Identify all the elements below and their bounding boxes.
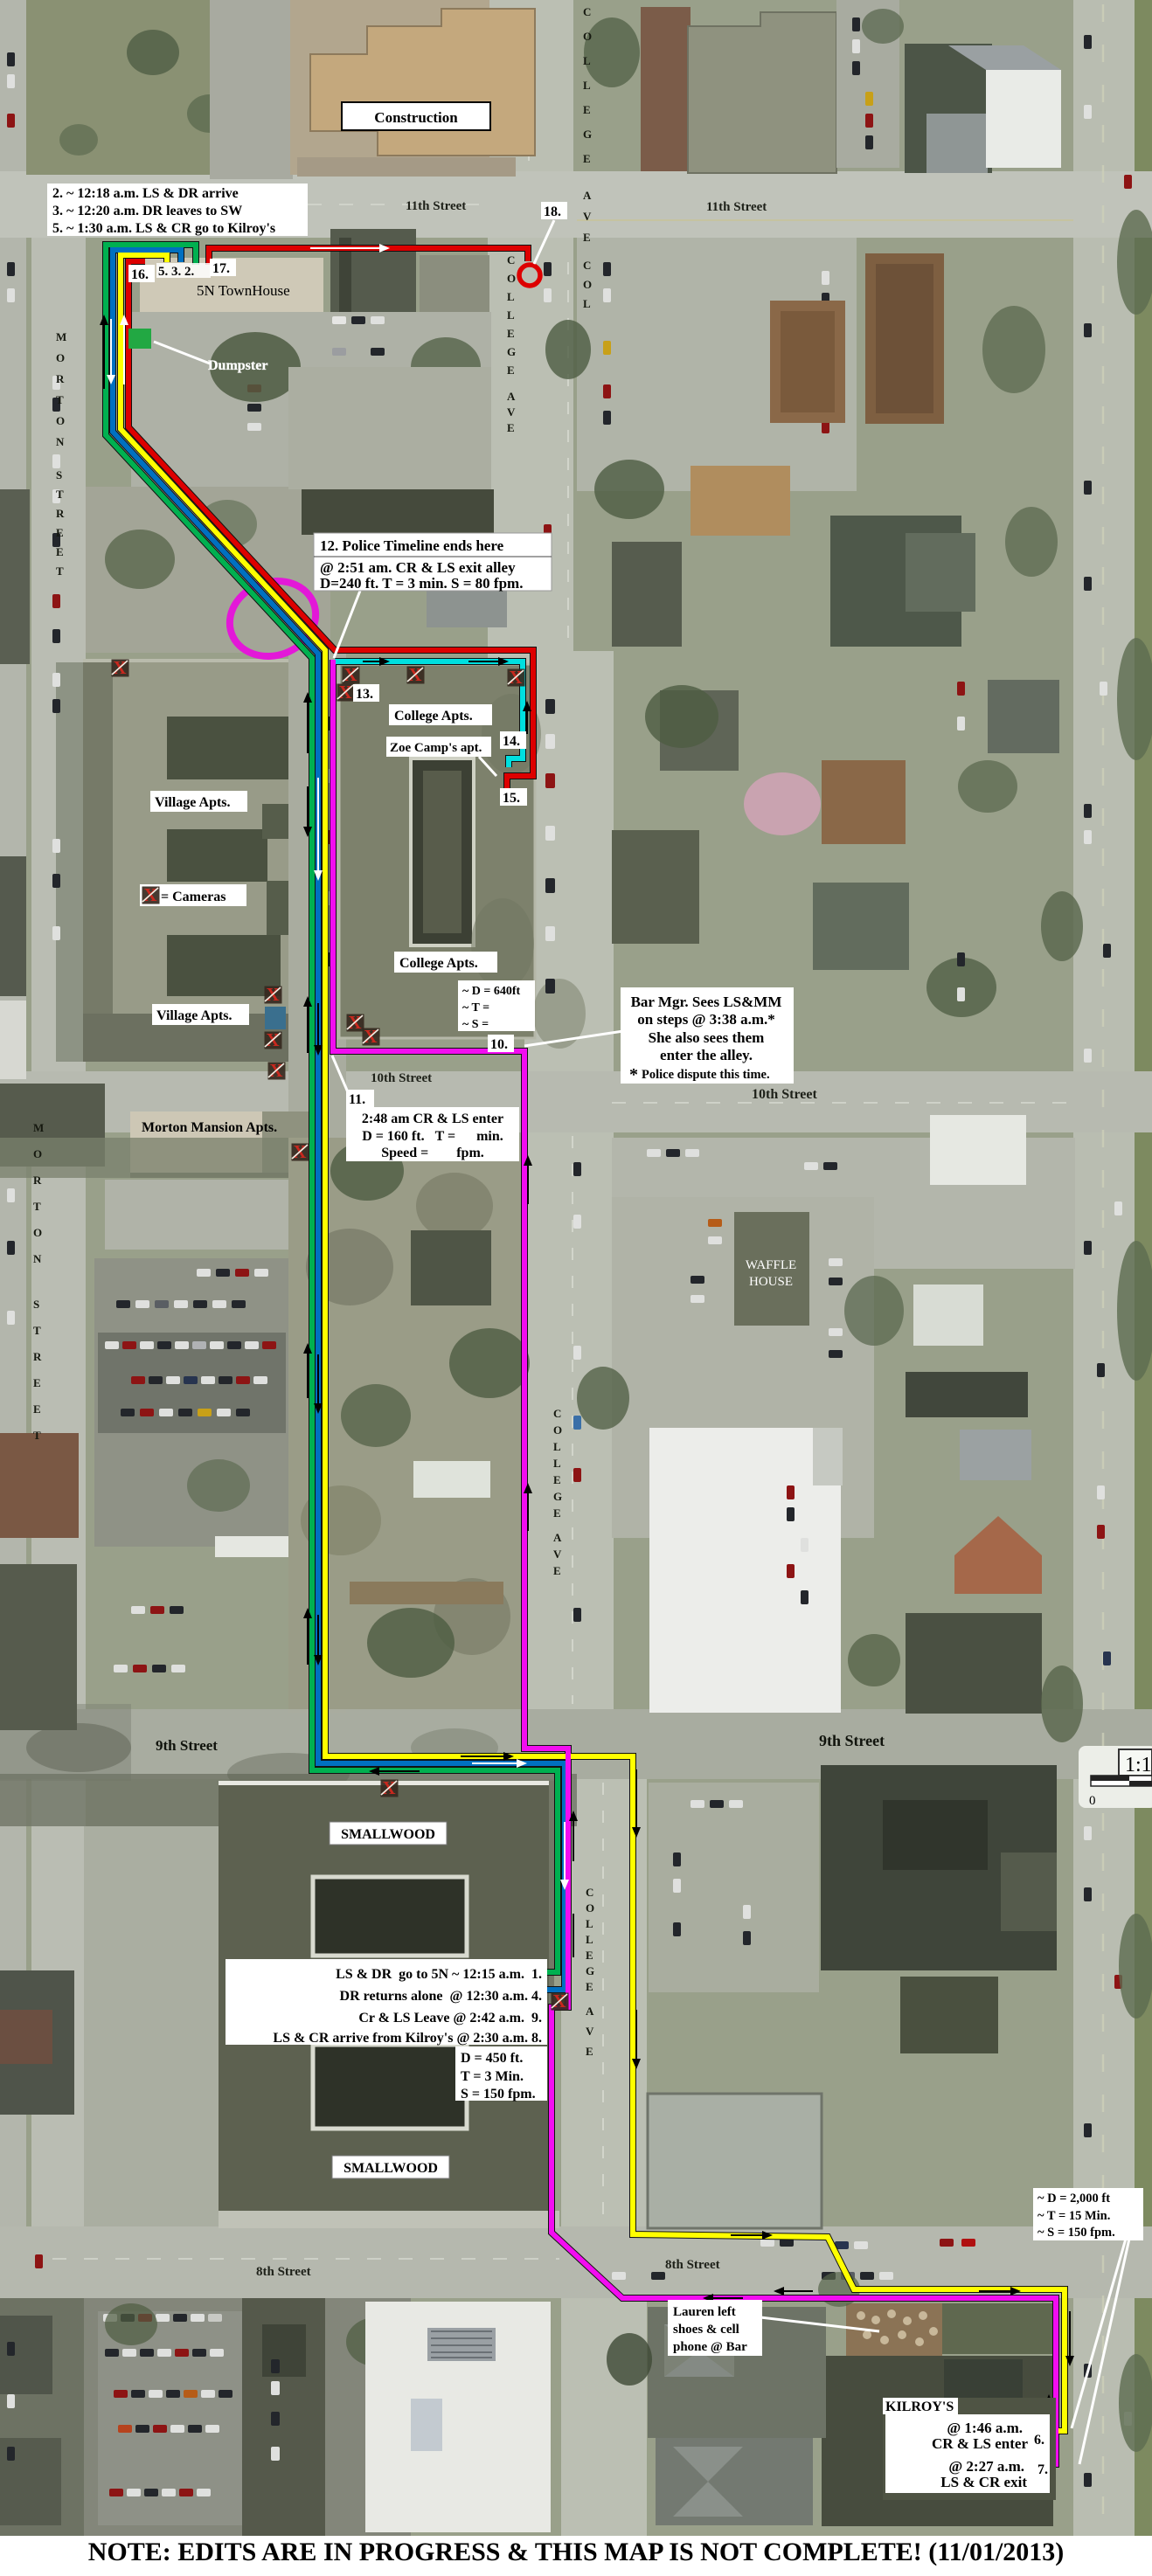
svg-text:17.: 17.	[212, 261, 230, 276]
svg-text:~ S = 150 fpm.: ~ S = 150 fpm.	[1037, 2226, 1115, 2240]
svg-text:Lauren left: Lauren left	[673, 2305, 736, 2319]
svg-text:3. ~ 12:20 a.m. DR leaves to S: 3. ~ 12:20 a.m. DR leaves to SW	[52, 204, 242, 218]
svg-text:LS & CR arrive from Kilroy's @: LS & CR arrive from Kilroy's @ 2:30 a.m.…	[273, 2031, 542, 2046]
svg-text:*: *	[629, 1065, 638, 1084]
svg-text:5N TownHouse: 5N TownHouse	[197, 282, 290, 299]
svg-text:11.: 11.	[349, 1092, 365, 1107]
svg-text:Morton Mansion Apts.: Morton Mansion Apts.	[142, 1120, 277, 1135]
svg-text:KILROY'S: KILROY'S	[885, 2399, 954, 2414]
svg-text:9th Street: 9th Street	[156, 1737, 218, 1754]
svg-text:~ T =: ~ T =	[462, 1001, 489, 1014]
svg-text:= Cameras: = Cameras	[161, 890, 226, 904]
svg-text:Dumpster: Dumpster	[208, 358, 267, 373]
svg-text:5. ~ 1:30 a.m. LS & CR go to K: 5. ~ 1:30 a.m. LS & CR go to Kilroy's	[52, 221, 275, 236]
svg-text:10th Street: 10th Street	[752, 1087, 817, 1102]
svg-text:Police dispute this time.: Police dispute this time.	[642, 1068, 770, 1082]
svg-text:S = 150 fpm.: S = 150 fpm.	[461, 2087, 536, 2102]
svg-text:WAFFLE: WAFFLE	[746, 1258, 796, 1272]
svg-text:Zoe Camp's apt.: Zoe Camp's apt.	[390, 741, 482, 755]
svg-text:@ 2:27 a.m.: @ 2:27 a.m.	[948, 2458, 1024, 2475]
svg-text:15.: 15.	[503, 791, 520, 806]
svg-text:CR & LS enter: CR & LS enter	[932, 2435, 1028, 2452]
svg-text:College Apts.: College Apts.	[399, 956, 478, 971]
svg-text:T = 3 Min.: T = 3 Min.	[461, 2069, 524, 2084]
svg-text:Village Apts.: Village Apts.	[156, 1008, 232, 1023]
svg-text:2. ~ 12:18 a.m. LS & DR arrive: 2. ~ 12:18 a.m. LS & DR arrive	[52, 186, 239, 201]
svg-text:11th Street: 11th Street	[406, 199, 466, 213]
svg-text:10.: 10.	[490, 1037, 508, 1052]
svg-text:LS & DR go to 5N ~ 12:15 a.m.: LS & DR go to 5N ~ 12:15 a.m. 1.	[336, 1967, 542, 1982]
svg-text:11th Street: 11th Street	[706, 200, 767, 214]
svg-text:NOTE: EDITS ARE IN PROGRESS &: NOTE: EDITS ARE IN PROGRESS & THIS MAP I…	[88, 2538, 1065, 2566]
svg-text:D=240 ft. T = 3 min. S = 80 f: D=240 ft. T = 3 min. S = 80 fpm.	[320, 575, 523, 592]
svg-text:She also sees them: She also sees them	[649, 1029, 765, 1046]
svg-text:phone @ Bar: phone @ Bar	[673, 2340, 747, 2354]
svg-text:5. 3. 2.: 5. 3. 2.	[158, 265, 195, 279]
svg-text:10th Street: 10th Street	[371, 1071, 432, 1085]
svg-text:D = 160 ft. T = min.: D = 160 ft. T = min.	[362, 1129, 503, 1144]
svg-text:~ D = 640ft: ~ D = 640ft	[462, 985, 521, 998]
svg-text:SMALLWOOD: SMALLWOOD	[341, 1827, 435, 1842]
svg-text:LS & CR exit: LS & CR exit	[940, 2474, 1027, 2490]
svg-text:7.: 7.	[1037, 2462, 1048, 2477]
svg-text:8th Street: 8th Street	[256, 2265, 311, 2279]
svg-text:~ S =: ~ S =	[462, 1018, 489, 1031]
svg-text:Village Apts.: Village Apts.	[155, 795, 231, 810]
svg-text:12. Police Timeline ends here: 12. Police Timeline ends here	[320, 537, 504, 554]
svg-text:~ D = 2,000 ft: ~ D = 2,000 ft	[1037, 2192, 1110, 2206]
svg-text:on steps @ 3:38 a.m.*: on steps @ 3:38 a.m.*	[637, 1011, 774, 1028]
svg-text:College Apts.: College Apts.	[394, 709, 473, 724]
svg-text:14.: 14.	[503, 734, 520, 749]
svg-text:SMALLWOOD: SMALLWOOD	[344, 2161, 438, 2176]
svg-text:9th Street: 9th Street	[819, 1732, 885, 1749]
svg-text:Bar Mgr. Sees LS&MM: Bar Mgr. Sees LS&MM	[631, 994, 782, 1010]
svg-text:@ 1:46 a.m.: @ 1:46 a.m.	[947, 2420, 1023, 2436]
svg-text:HOUSE: HOUSE	[749, 1275, 793, 1289]
svg-text:18.: 18.	[544, 204, 561, 219]
svg-text:enter the alley.: enter the alley.	[660, 1047, 753, 1063]
svg-text:shoes & cell: shoes & cell	[673, 2323, 739, 2337]
svg-text:2:48 am CR & LS enter: 2:48 am CR & LS enter	[362, 1111, 503, 1126]
svg-text:DR returns alone @ 12:30 a.m.: DR returns alone @ 12:30 a.m. 4.	[340, 1989, 542, 2004]
svg-text:1:1: 1:1	[1125, 1754, 1152, 1776]
svg-text:~ T = 15 Min.: ~ T = 15 Min.	[1037, 2209, 1110, 2223]
svg-text:16.: 16.	[131, 267, 149, 282]
svg-text:@ 2:51 am. CR & LS exit alley: @ 2:51 am. CR & LS exit alley	[320, 559, 516, 576]
svg-text:Cr & LS Leave @ 2:42 a.m. 9.: Cr & LS Leave @ 2:42 a.m. 9.	[358, 2011, 542, 2025]
svg-text:0: 0	[1089, 1794, 1096, 1808]
svg-text:6.: 6.	[1034, 2433, 1044, 2448]
svg-text:13.: 13.	[356, 687, 373, 702]
svg-text:Construction: Construction	[374, 109, 458, 126]
svg-text:Speed = fpm.: Speed = fpm.	[381, 1146, 484, 1160]
svg-text:8th Street: 8th Street	[665, 2258, 720, 2272]
svg-text:D = 450 ft.: D = 450 ft.	[461, 2051, 523, 2066]
